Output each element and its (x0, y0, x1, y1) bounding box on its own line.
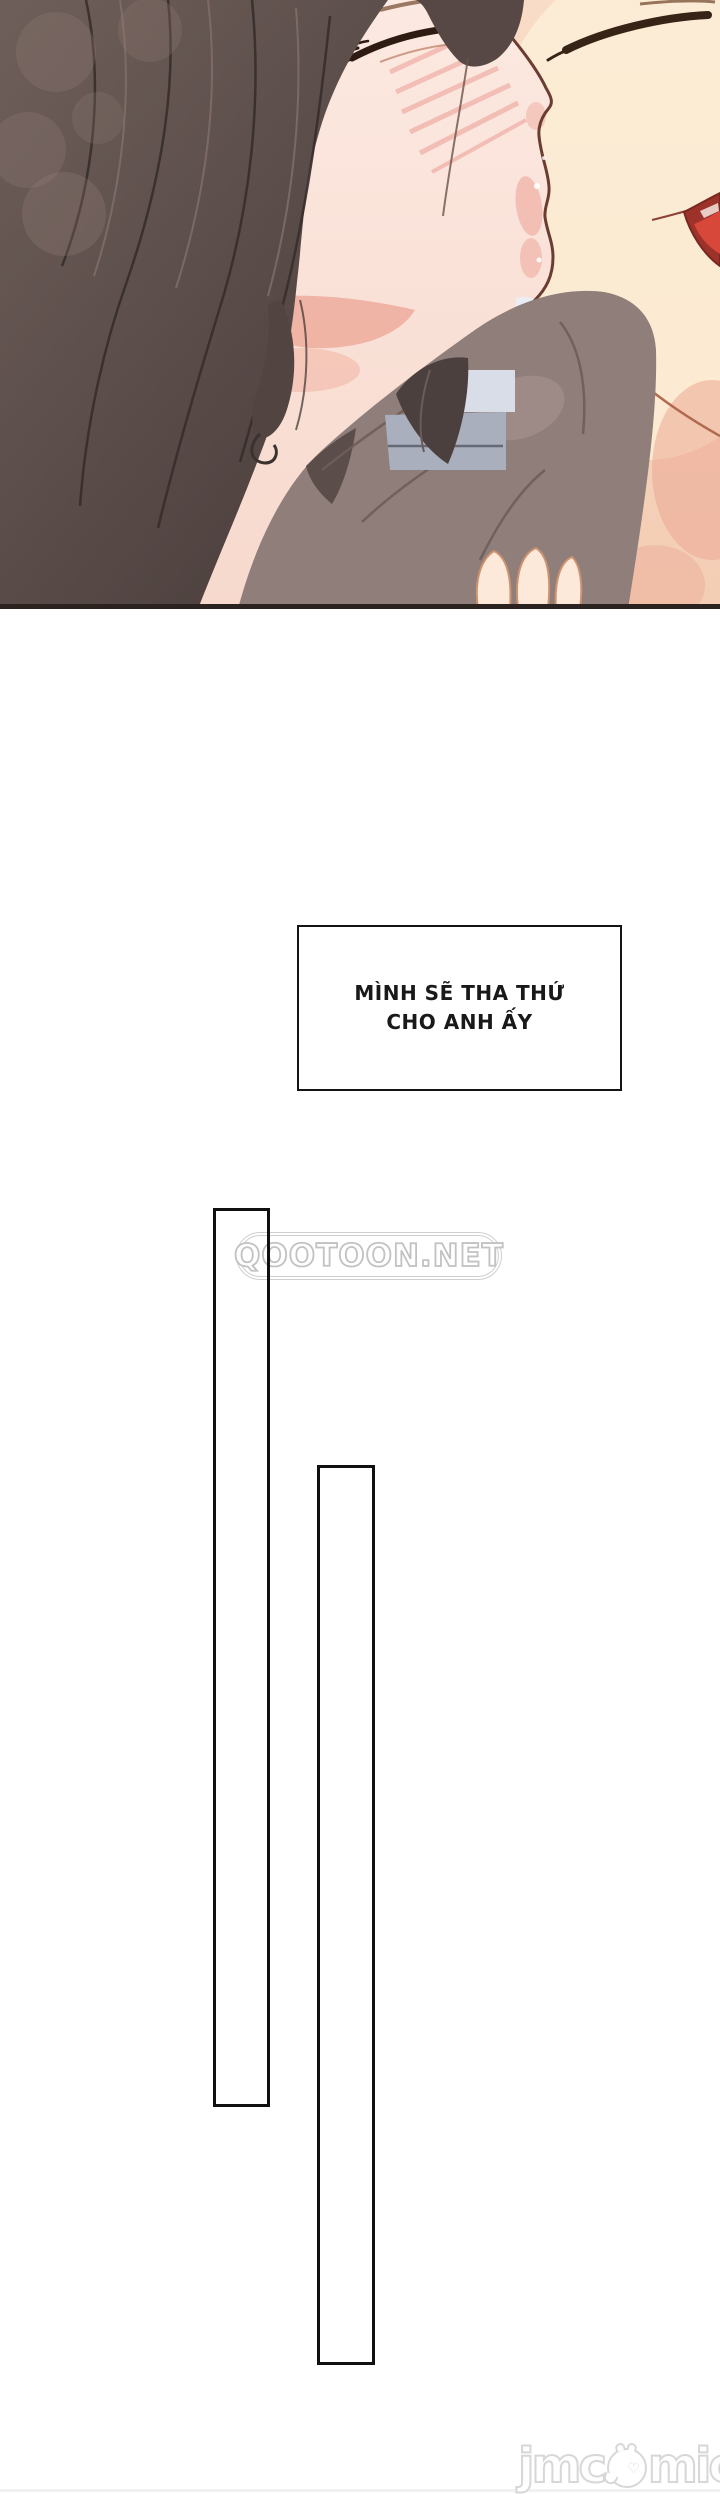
speech-line-2: CHO ANH ẤY (386, 1008, 532, 1037)
jmcomic-watermark: jmc ♡ mic (518, 2438, 720, 2490)
panel-bottom-border (0, 604, 720, 609)
kiss-illustration (0, 0, 720, 609)
chick-icon: ♡ (607, 2448, 647, 2488)
jmcomic-text-left: jmc (518, 2442, 604, 2490)
speech-box: MÌNH SẼ THA THỨ CHO ANH ẤY (297, 925, 622, 1091)
speech-line-1: MÌNH SẼ THA THỨ (354, 979, 564, 1008)
jmcomic-text-right: mic (648, 2442, 720, 2490)
qootoon-watermark-text: QOOTOON.NET (234, 1238, 504, 1274)
kiss-illustration-panel (0, 0, 720, 609)
qootoon-watermark: QOOTOON.NET (236, 1232, 502, 1280)
empty-panel-frame-2 (317, 1465, 375, 2365)
empty-panel-frame-1 (213, 1208, 270, 2107)
